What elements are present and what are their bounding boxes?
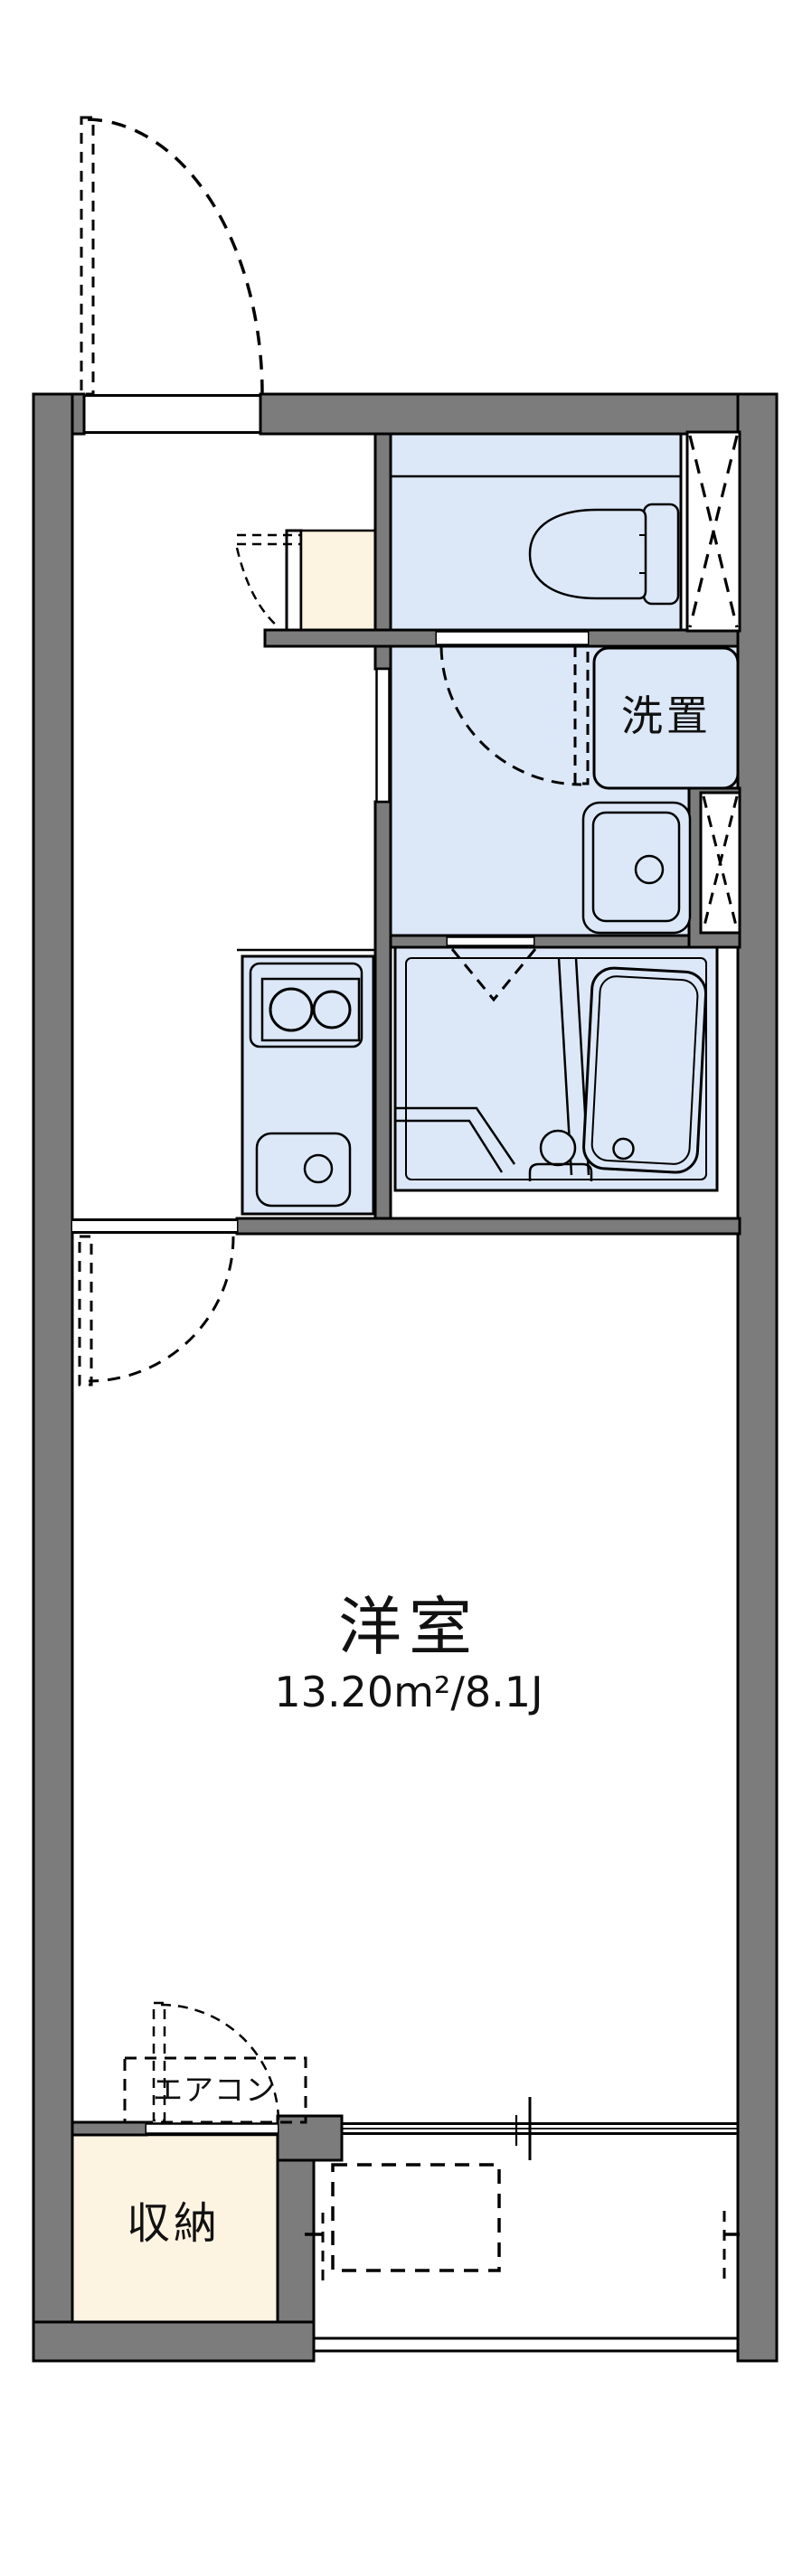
aircon-label: エアコン — [153, 2073, 276, 2108]
storage-opening — [146, 2124, 278, 2134]
pillar-column — [278, 2160, 314, 2322]
main-room-label: 洋室 — [338, 1590, 479, 1664]
toilet-bowl — [530, 510, 646, 598]
washroom-doorway — [377, 669, 390, 802]
toilet-tank — [644, 504, 678, 604]
wall-toilet-south-left — [265, 630, 437, 646]
shower-drain — [541, 1131, 575, 1165]
balcony — [314, 2338, 738, 2351]
wall-top — [260, 394, 777, 434]
wall-room-divider — [237, 1218, 740, 1234]
entrance-step — [301, 531, 375, 630]
entrance-cabinet-arc — [237, 548, 279, 627]
floor-plan: 洗置 洋室 13.20m²/8.1J エアコン 収納 — [0, 0, 812, 2576]
wall-bath-north-left — [391, 935, 448, 947]
entrance-step-edge — [287, 531, 301, 630]
wall-bottom-left — [33, 2322, 314, 2361]
outdoor-unit-box — [333, 2165, 499, 2270]
entrance-opening — [85, 396, 260, 432]
bathtub — [582, 967, 706, 1173]
main-room-doorway — [72, 1220, 237, 1233]
main-room-door-swing-arc — [89, 1236, 233, 1381]
wall-toilet-south-right — [588, 630, 738, 646]
balcony-window — [342, 2097, 738, 2160]
balcony-rail — [314, 2338, 738, 2351]
wall-bath-north-right — [533, 935, 689, 947]
bathtub-outer — [582, 967, 706, 1173]
entrance-door-swing-arc — [88, 119, 262, 394]
floor-plan-drawing: 洗置 洋室 13.20m²/8.1J エアコン 収納 — [0, 0, 812, 2576]
wall-left — [33, 394, 72, 2361]
bathroom-doorway — [448, 937, 533, 946]
entrance-door-leaf — [81, 118, 93, 394]
storage-label: 収納 — [127, 2198, 221, 2249]
wall-storage-stub — [72, 2122, 146, 2135]
toilet-door-opening — [437, 632, 588, 645]
main-room-door-leaf — [80, 1236, 91, 1385]
laundry-space-label: 洗置 — [621, 691, 712, 740]
wall-hall-divider-lower — [375, 802, 391, 1218]
main-room-size-label: 13.20m²/8.1J — [274, 1668, 543, 1716]
wall-right — [738, 394, 777, 2361]
